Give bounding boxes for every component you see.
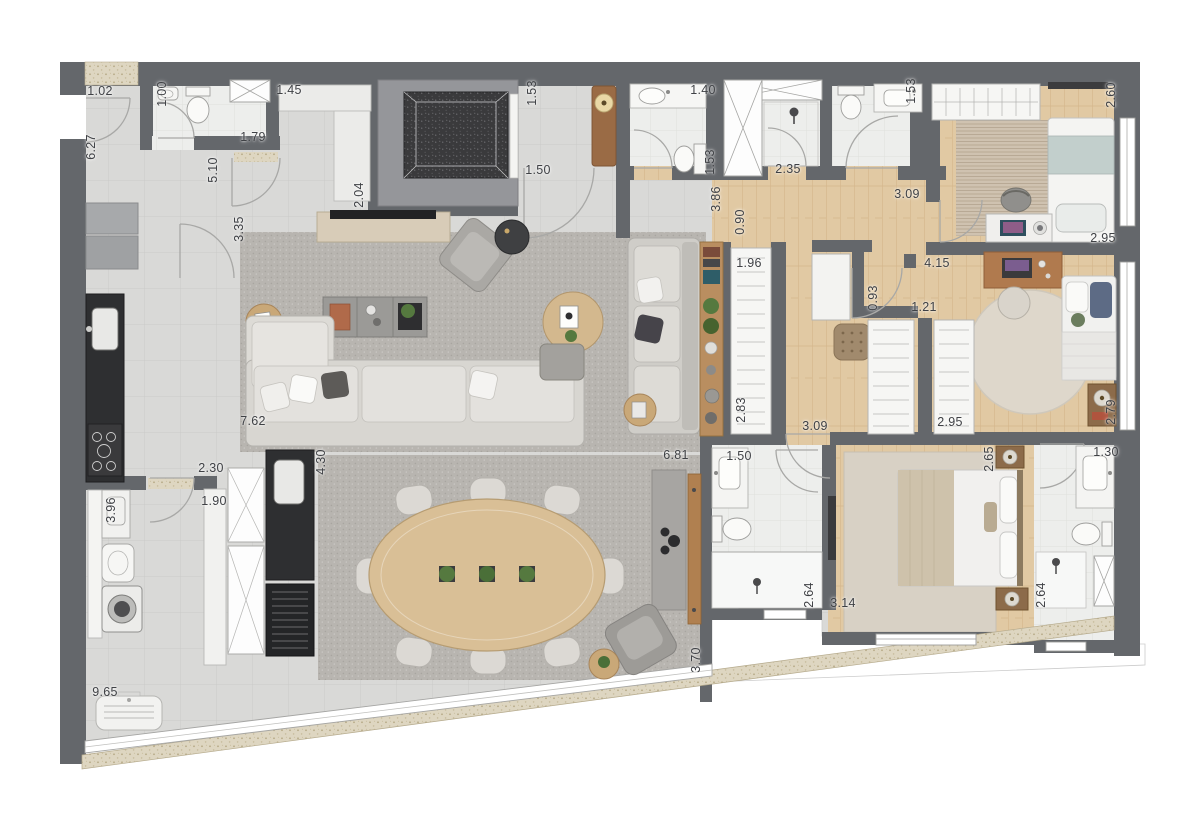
tv-console [317, 210, 450, 242]
pillow [1000, 477, 1017, 523]
wardrobe-bedroom1 [932, 84, 1040, 120]
lavabo-toilet [674, 146, 694, 172]
toilet-tank [186, 87, 210, 96]
stove [88, 424, 122, 476]
floorplan-canvas: 1.021.001.456.271.795.102.043.351.531.50… [0, 0, 1200, 829]
bathroom3-toilet [841, 95, 861, 119]
fireplace-panel [652, 470, 701, 624]
bed-master [898, 470, 1023, 586]
plant [401, 304, 415, 318]
coffee-table-trio [323, 297, 427, 337]
table-plants [439, 566, 535, 582]
tv-panel-master [828, 496, 836, 560]
washing-machine [102, 586, 142, 632]
window-master [876, 634, 976, 645]
pillow [1056, 204, 1106, 232]
plant-table [589, 649, 619, 679]
pillow-dark [320, 370, 349, 399]
pillow-navy [1090, 282, 1112, 318]
toilet-bowl [187, 97, 209, 123]
bar-shelf [688, 474, 701, 624]
master-shower [712, 552, 822, 608]
wall-top [60, 62, 1140, 86]
side-table-black [495, 220, 529, 254]
headboard [1017, 470, 1023, 586]
ottoman [540, 344, 584, 380]
pillow [636, 276, 664, 304]
island-sink [274, 460, 304, 504]
pillow [288, 374, 318, 404]
desk-chair-2 [998, 287, 1030, 319]
bed-single-2 [1062, 276, 1116, 380]
hall-bench [812, 254, 850, 320]
bathroom2-shower [1036, 552, 1086, 608]
blanket [1048, 136, 1114, 174]
pillow [1000, 532, 1017, 578]
pouf [834, 324, 870, 360]
desk-chair-1 [1001, 188, 1031, 212]
pillow [1066, 282, 1088, 312]
tv [330, 210, 436, 219]
kitchen-tall-units [86, 203, 138, 269]
wall-shelf [1048, 82, 1108, 89]
balcony-lounger [96, 692, 162, 730]
nightstand-bedroom2 [1088, 384, 1116, 426]
bathroom2-toilet [1072, 523, 1100, 545]
elevator [378, 80, 518, 206]
elevator-sill [510, 94, 518, 178]
master-bath-toilet [723, 518, 751, 540]
bed-single-1 [1048, 118, 1114, 242]
floorplan-drawing [0, 0, 1200, 829]
shelf-unit [700, 242, 723, 436]
window-bathroom2 [1046, 642, 1086, 651]
pillow-checker [634, 314, 665, 345]
wardrobe-corridor [731, 248, 771, 434]
side-table-small [624, 394, 656, 426]
blanket-throw [898, 470, 954, 586]
window-master-bath [764, 610, 806, 619]
pillow [468, 370, 499, 401]
wall-left [60, 62, 86, 764]
kitchen-sink [92, 308, 118, 350]
laundry-tub [102, 544, 134, 582]
window-bedroom1 [1120, 118, 1135, 226]
pillow [259, 381, 291, 413]
desk-bedroom2 [984, 252, 1062, 288]
coffee-table-round [543, 292, 603, 352]
desk-bedroom1 [986, 214, 1052, 242]
accent-cushion [984, 502, 997, 532]
kitchen-counter [86, 294, 124, 482]
window-bedroom2 [1120, 262, 1135, 430]
shelf-plant [703, 318, 719, 334]
entry-bench [592, 86, 616, 166]
shelf-plant [703, 298, 719, 314]
